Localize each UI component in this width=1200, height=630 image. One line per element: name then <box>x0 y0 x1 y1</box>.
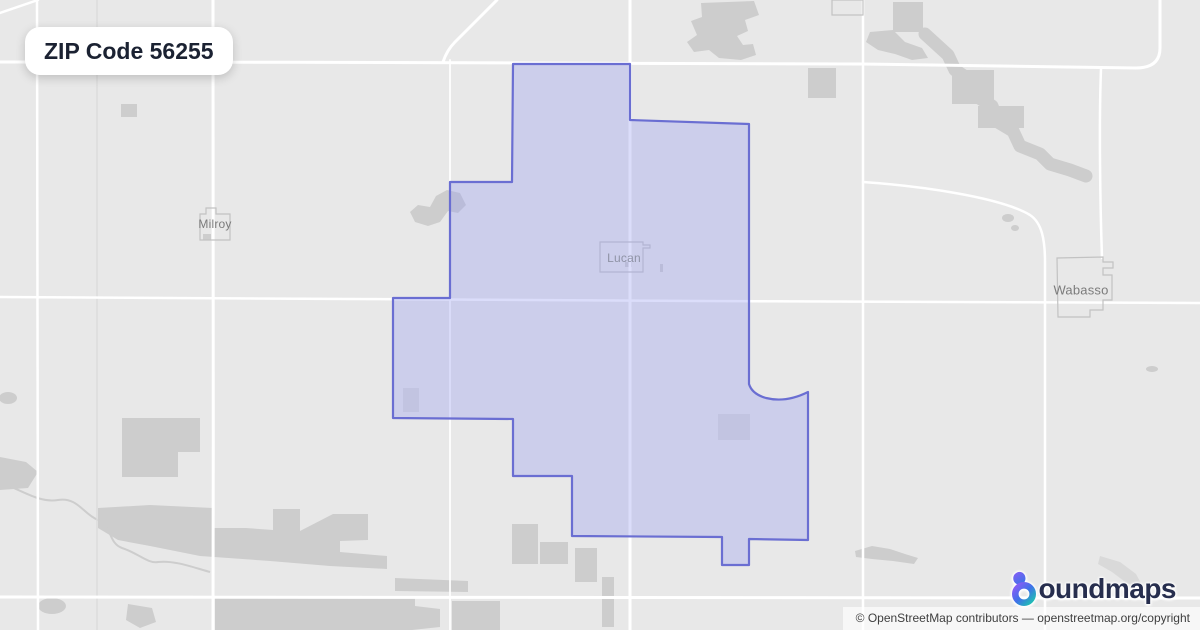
attribution-text: © OpenStreetMap contributors — <box>856 611 1038 625</box>
map-page: Milroy Lucan Wabasso ZIP Code 56255 ound… <box>0 0 1200 630</box>
boundmaps-logo-text: oundmaps <box>1038 575 1176 603</box>
attribution-link[interactable]: openstreetmap.org/copyright <box>1037 611 1190 625</box>
boundmaps-b-icon <box>1010 571 1037 606</box>
map-canvas[interactable] <box>0 0 1200 630</box>
boundmaps-logo[interactable]: oundmaps <box>1010 571 1176 606</box>
zip-code-badge: ZIP Code 56255 <box>25 27 233 75</box>
attribution-bar: © OpenStreetMap contributors — openstree… <box>843 607 1200 630</box>
zip-boundary-polygon[interactable] <box>393 64 808 565</box>
